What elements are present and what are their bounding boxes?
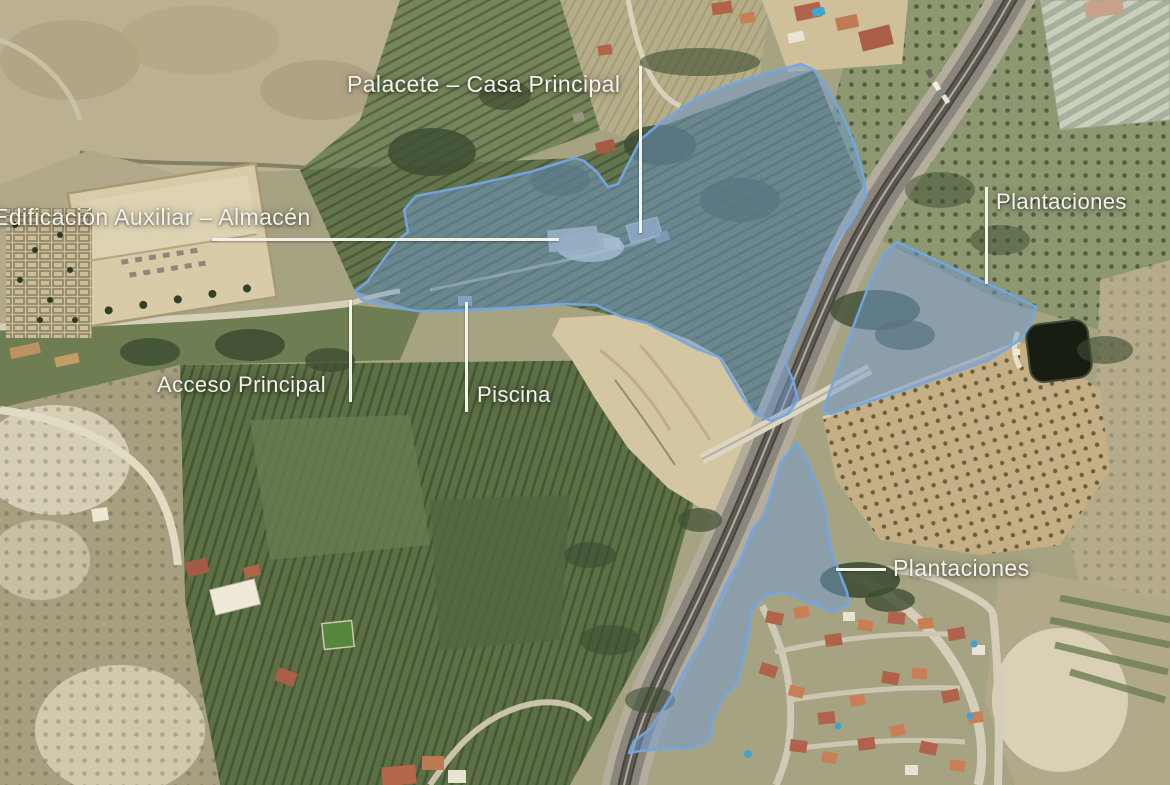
acceso-principal-label: Acceso Principal [157,372,326,398]
plantaciones-north-leader-line [985,187,988,284]
almacen-label: Edificación Auxiliar – Almacén [0,204,311,231]
plantaciones-north-label: Plantaciones [996,189,1127,215]
plantaciones-south-leader-line [836,568,886,571]
palacete-leader-line [639,66,642,233]
aerial-property-map: Palacete – Casa Principal Edificación Au… [0,0,1170,785]
almacen-leader-line [212,238,559,241]
archaeological-site [68,164,277,327]
piscina-leader-line [465,302,468,412]
sports-field [322,621,355,650]
palacete-label: Palacete – Casa Principal [347,71,620,98]
plantaciones-south-label: Plantaciones [893,555,1030,582]
acceso-leader-line [349,300,352,402]
piscina-label: Piscina [477,382,551,408]
